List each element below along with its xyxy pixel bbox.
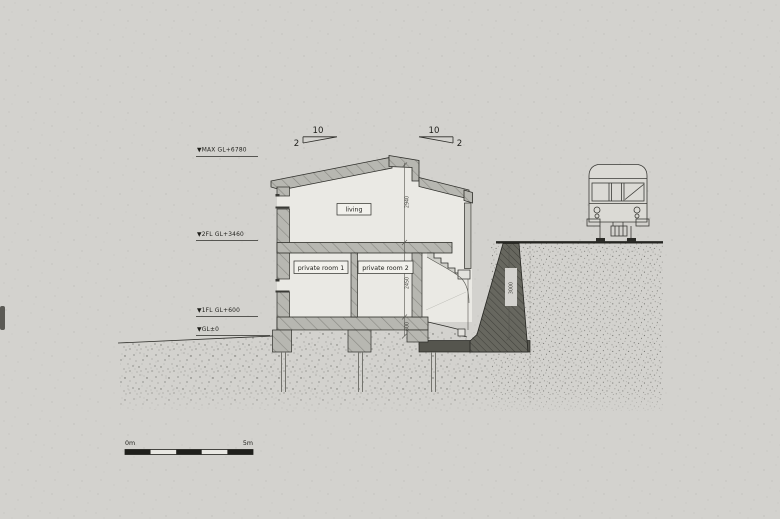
dim-text-600: 600: [404, 322, 410, 331]
scale-segment-3: [176, 450, 202, 455]
dim-text-2940: 2940: [404, 196, 410, 208]
roof-right-lip: [464, 190, 473, 203]
train-wheel-left: [596, 238, 605, 242]
dim-text-2450: 2450: [404, 277, 410, 289]
window-head-upper: [276, 194, 280, 197]
scale-label-end: 5m: [243, 440, 253, 447]
window-head-lower: [276, 279, 280, 282]
scale-segment-2: [151, 450, 177, 455]
scale-segment-5: [227, 450, 253, 455]
level-label-2fl: ▼2FL GL+3460: [197, 232, 244, 238]
slope-run-label-left: 10: [313, 126, 324, 136]
footing-left: [273, 330, 292, 352]
room2-side-wall: [412, 253, 422, 317]
partition-wall: [351, 253, 358, 317]
paper-edge-smudge: [0, 306, 5, 330]
scale-segment-1: [125, 450, 151, 455]
scale-label-start: 0m: [125, 440, 135, 447]
slope-run-label-right: 10: [429, 126, 440, 136]
train-body: [589, 165, 647, 223]
window-sill-upper: [276, 207, 290, 209]
footing-center: [348, 330, 371, 352]
window-sill-lower: [276, 291, 290, 293]
room-label-private2: private room 2: [362, 265, 409, 272]
court-curb: [458, 329, 465, 336]
slope-rise-label-right: 2: [457, 139, 462, 149]
stair-landing: [458, 270, 470, 279]
floor-slab-2f: [277, 243, 452, 254]
room-label-private1: private room 1: [298, 265, 345, 272]
drawing-canvas: 3000: [0, 0, 780, 519]
dim-text-3000: 3000: [509, 282, 515, 294]
room-label-living: living: [346, 207, 363, 214]
level-label-1fl: ▼1FL GL+600: [197, 308, 240, 314]
ground-fade-overlay: [100, 390, 680, 418]
level-label-gl: ▼GL±0: [197, 327, 219, 333]
section-drawing: 3000: [0, 0, 780, 519]
level-label-max: ▼MAX GL+6780: [197, 148, 247, 154]
train-wheel-right: [627, 238, 636, 242]
upper-right-wall: [465, 203, 472, 269]
scale-segment-4: [202, 450, 228, 455]
slope-rise-label-left: 2: [294, 139, 299, 149]
